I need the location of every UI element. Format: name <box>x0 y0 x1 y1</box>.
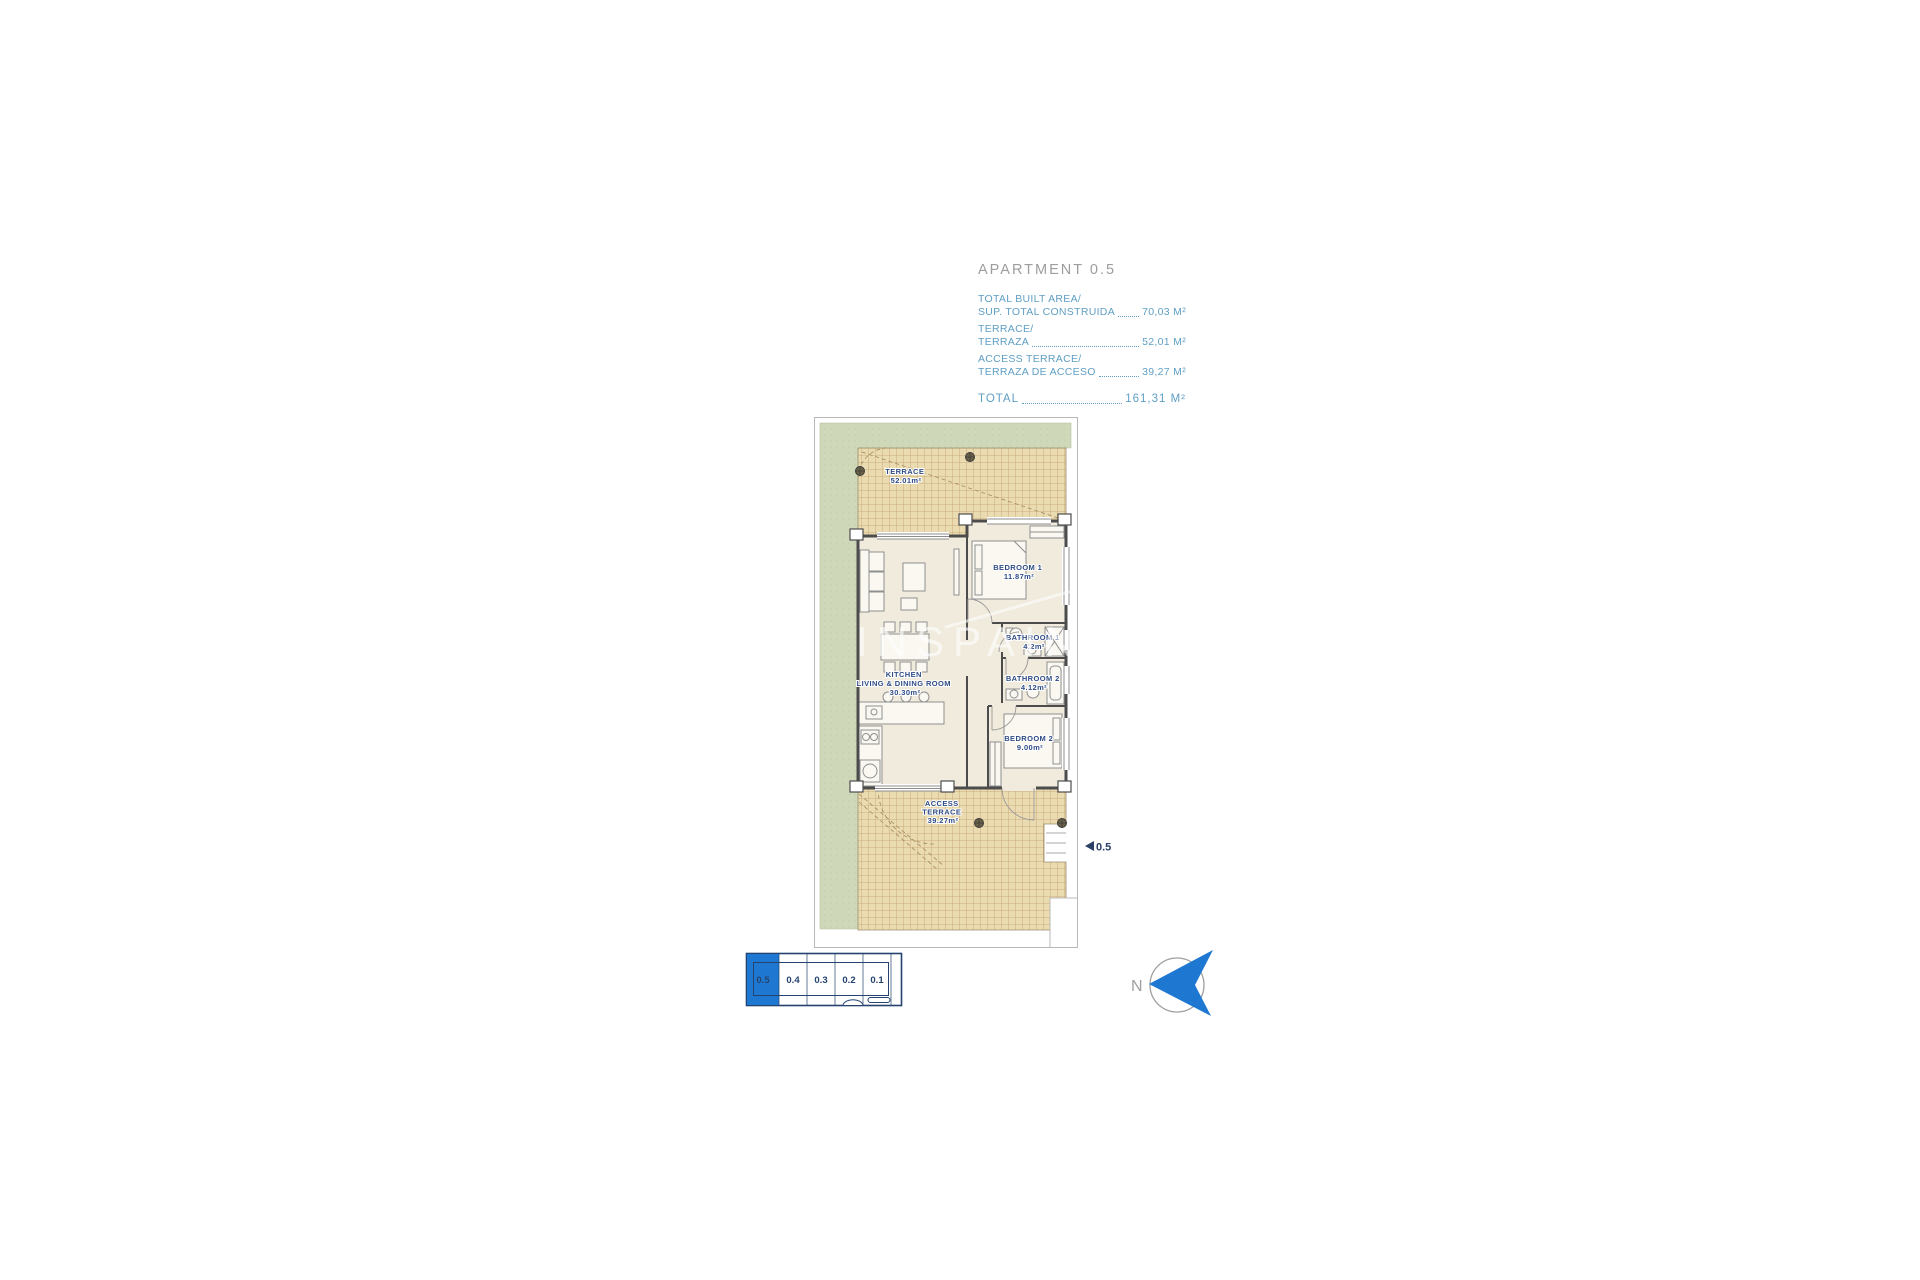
keyplan-unit-0-4: 0.4 <box>786 975 800 986</box>
access-terrace-label: ACCESS TERRACE 39.27m² <box>922 799 964 825</box>
unit-marker-arrow-icon <box>1085 841 1094 851</box>
keyplan: 0.5 0.4 0.3 0.2 0.1 <box>747 954 902 1006</box>
access-terrace-area <box>858 788 1077 947</box>
unit-marker: 0.5 <box>1085 841 1111 854</box>
compass-north-label: N <box>1131 978 1143 995</box>
keyplan-unit-0-3: 0.3 <box>814 975 827 986</box>
floor-plan-canvas: TERRACE 52.01m² BEDROOM 1 11.87m² BATHRO… <box>0 0 1920 1280</box>
keyplan-unit-0-1: 0.1 <box>870 975 884 986</box>
keyplan-unit-0-5: 0.5 <box>756 975 770 986</box>
keyplan-unit-0-2: 0.2 <box>842 975 855 986</box>
compass: N <box>1131 950 1213 1016</box>
unit-marker-label: 0.5 <box>1096 842 1111 854</box>
terrace-label: TERRACE 52.01m² <box>885 467 927 485</box>
